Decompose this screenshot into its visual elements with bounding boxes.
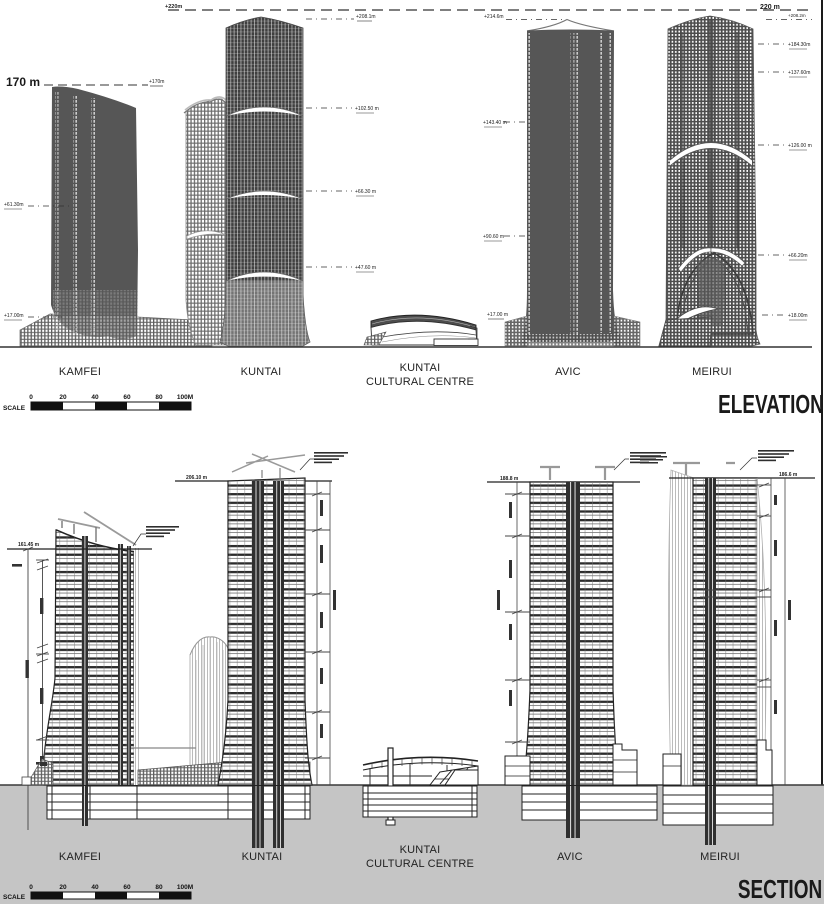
svg-text:161.45 m: 161.45 m — [18, 542, 40, 548]
svg-text:+66.30 m: +66.30 m — [355, 189, 376, 195]
svg-text:+126.00 m: +126.00 m — [788, 143, 812, 149]
svg-text:188.8 m: 188.8 m — [500, 476, 519, 482]
svg-text:KUNTAI: KUNTAI — [400, 844, 441, 856]
svg-text:20: 20 — [59, 394, 67, 401]
svg-text:+137.60m: +137.60m — [788, 70, 810, 76]
svg-text:+143.40 m: +143.40 m — [483, 120, 507, 126]
svg-text:KUNTAI: KUNTAI — [241, 366, 282, 378]
svg-text:60: 60 — [123, 884, 131, 891]
svg-text:+220m: +220m — [165, 4, 182, 10]
svg-text:220 m: 220 m — [760, 4, 780, 11]
svg-text:0: 0 — [29, 394, 33, 401]
svg-text:+17.00 m: +17.00 m — [487, 312, 508, 318]
svg-text:SCALE: SCALE — [3, 894, 26, 901]
svg-text:+90.60 m: +90.60 m — [483, 234, 504, 240]
svg-text:186.6 m: 186.6 m — [779, 472, 798, 478]
svg-text:100M: 100M — [177, 394, 193, 401]
svg-text:SECTION: SECTION — [738, 874, 822, 904]
svg-text:KAMFEI: KAMFEI — [59, 366, 101, 378]
svg-text:+18.00m: +18.00m — [788, 313, 808, 319]
svg-text:206.10 m: 206.10 m — [186, 475, 208, 481]
svg-text:KUNTAI: KUNTAI — [400, 362, 441, 374]
svg-text:+17.00m: +17.00m — [4, 313, 24, 319]
svg-text:+214.6m: +214.6m — [484, 14, 504, 20]
svg-text:MEIRUI: MEIRUI — [700, 851, 740, 863]
svg-text:+66.20m: +66.20m — [788, 253, 808, 259]
svg-text:MEIRUI: MEIRUI — [692, 366, 732, 378]
svg-text:80: 80 — [155, 884, 163, 891]
svg-text:ELEVATION: ELEVATION — [718, 389, 824, 419]
svg-text:AVIC: AVIC — [555, 366, 581, 378]
svg-text:+47.60 m: +47.60 m — [355, 265, 376, 271]
svg-text:AVIC: AVIC — [557, 851, 583, 863]
svg-text:SCALE: SCALE — [3, 405, 26, 412]
svg-text:KUNTAI: KUNTAI — [242, 851, 283, 863]
svg-text:80: 80 — [155, 394, 163, 401]
svg-text:+61.30m: +61.30m — [4, 202, 24, 208]
svg-text:+184.30m: +184.30m — [788, 42, 810, 48]
svg-text:100M: 100M — [177, 884, 193, 891]
svg-text:0: 0 — [29, 884, 33, 891]
svg-text:60: 60 — [123, 394, 131, 401]
svg-text:170 m: 170 m — [6, 75, 40, 89]
svg-text:+208.1m: +208.1m — [356, 14, 376, 20]
svg-text:+102.50 m: +102.50 m — [355, 106, 379, 112]
svg-text:40: 40 — [91, 394, 99, 401]
svg-text:+208.2m: +208.2m — [788, 13, 806, 18]
svg-text:KAMFEI: KAMFEI — [59, 851, 101, 863]
svg-text:+170m: +170m — [149, 79, 164, 85]
svg-text:40: 40 — [91, 884, 99, 891]
svg-text:CULTURAL CENTRE: CULTURAL CENTRE — [366, 858, 474, 870]
svg-text:20: 20 — [59, 884, 67, 891]
svg-text:CULTURAL CENTRE: CULTURAL CENTRE — [366, 376, 474, 388]
